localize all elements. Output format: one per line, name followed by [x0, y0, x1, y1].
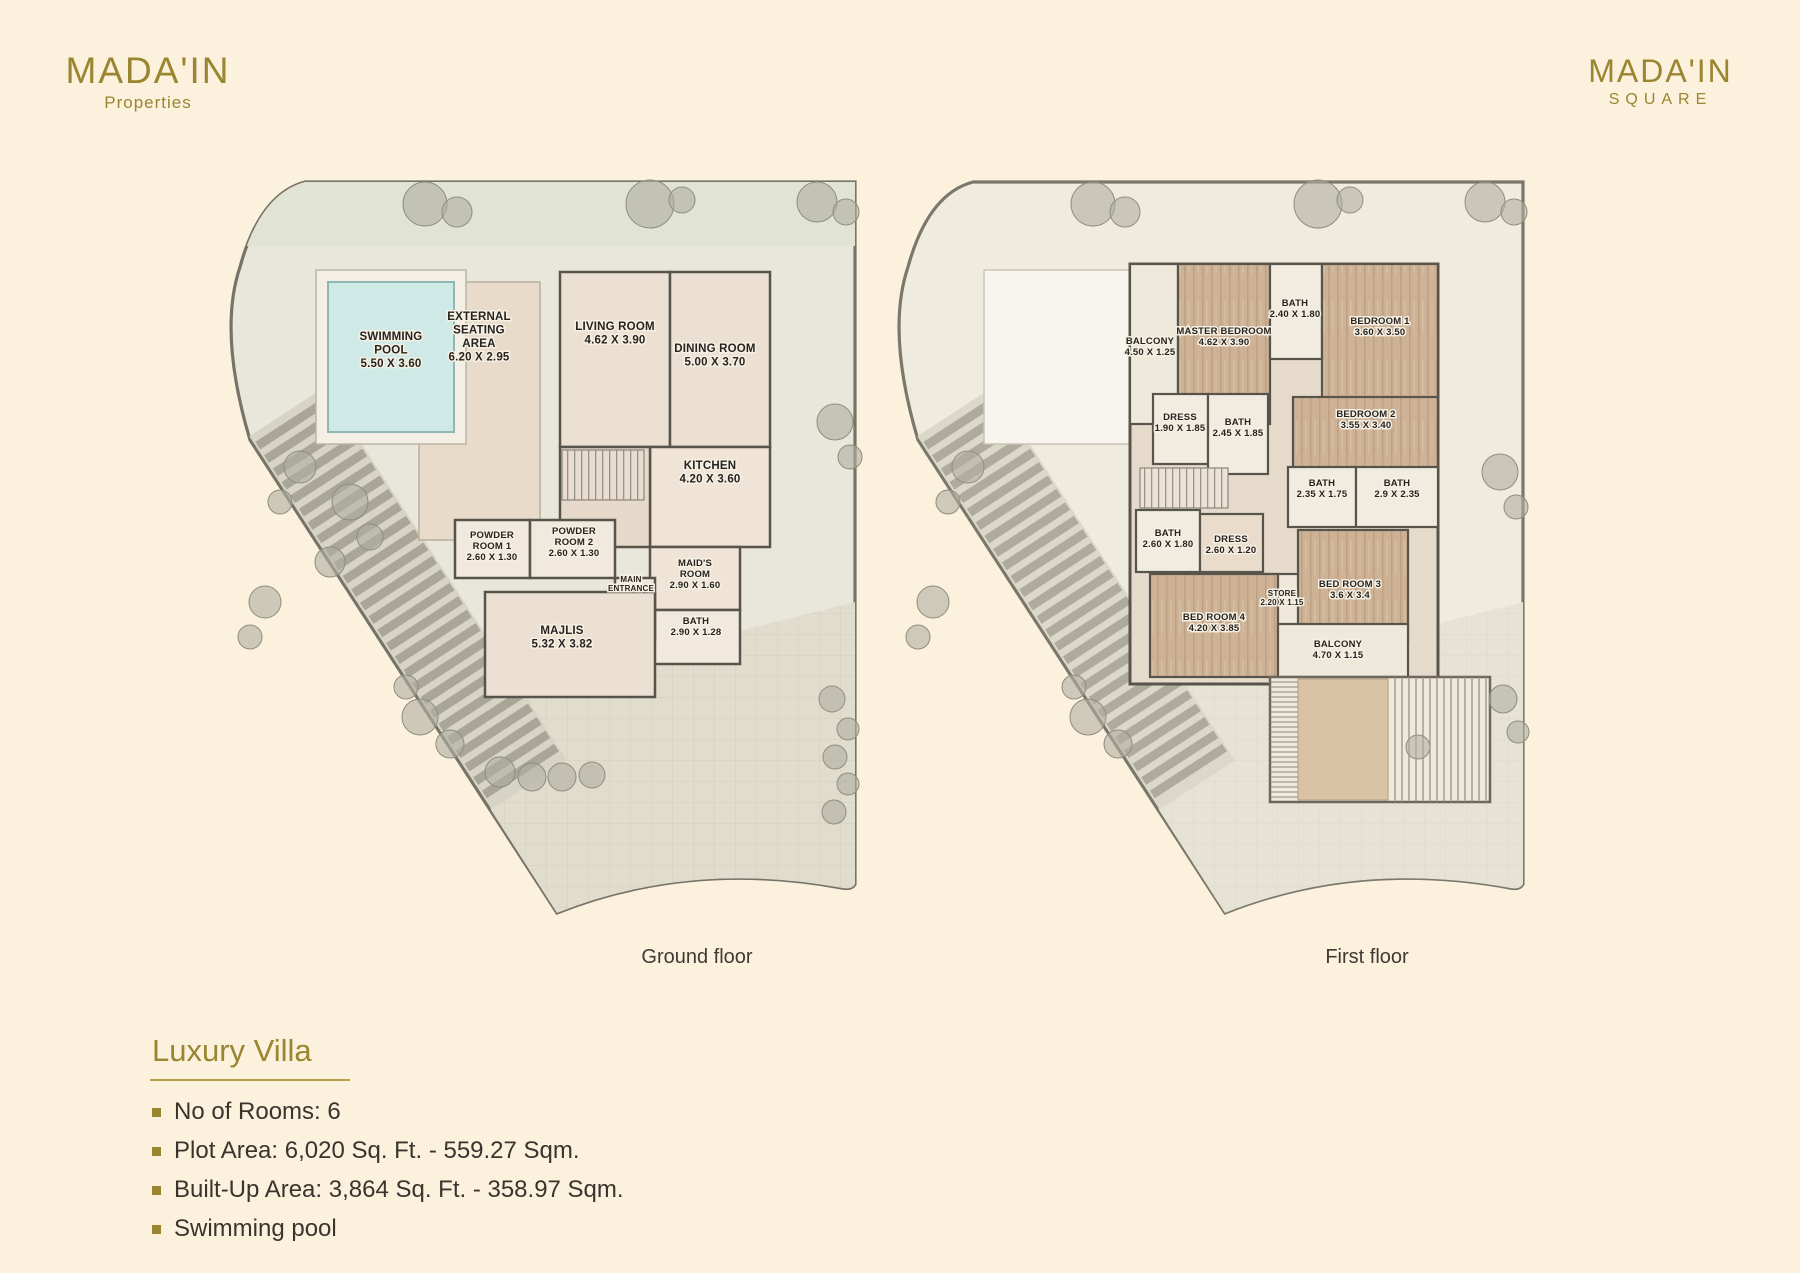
ground-floor-plan: SWIMMINGPOOL5.50 X 3.60EXTERNALSEATINGAR… [210, 172, 870, 947]
bullet-square-icon [152, 1186, 161, 1195]
room-label-powder_room_2: POWDERROOM 22.60 X 1.30 [549, 526, 600, 559]
room-label-bed_room_4: BED ROOM 44.20 X 3.85 [1183, 612, 1246, 634]
detail-bullet: Built-Up Area: 3,864 Sq. Ft. - 358.97 Sq… [150, 1175, 624, 1205]
villa-details: Luxury Villa No of Rooms: 6Plot Area: 6,… [150, 1033, 624, 1244]
room-label-dining_room: DINING ROOM5.00 X 3.70 [674, 343, 755, 369]
caption-ground-floor: Ground floor [587, 946, 807, 969]
detail-text: Swimming pool [174, 1214, 337, 1244]
first-floor-plan: BALCONY4.50 X 1.25MASTER BEDROOM4.62 X 3… [878, 172, 1538, 947]
caption-first-floor: First floor [1257, 946, 1477, 969]
room-label-bedroom_1: BEDROOM 13.60 X 3.50 [1350, 316, 1410, 338]
bullet-square-icon [152, 1147, 161, 1156]
detail-text: Built-Up Area: 3,864 Sq. Ft. - 358.97 Sq… [174, 1175, 624, 1205]
room-label-balcony_left: BALCONY4.50 X 1.25 [1125, 336, 1176, 358]
details-list: No of Rooms: 6Plot Area: 6,020 Sq. Ft. -… [150, 1097, 624, 1244]
brand-logo-square: MADA'IN SQUARE [1578, 55, 1743, 109]
detail-bullet: Swimming pool [150, 1214, 624, 1244]
brochure-page: MADA'IN Properties MADA'IN SQUARE [0, 0, 1800, 1273]
room-label-powder_room_1: POWDERROOM 12.60 X 1.30 [467, 530, 518, 563]
bullet-square-icon [152, 1225, 161, 1234]
detail-bullet: Plot Area: 6,020 Sq. Ft. - 559.27 Sqm. [150, 1136, 624, 1166]
room-label-bedroom_2: BEDROOM 23.55 X 3.40 [1336, 409, 1395, 431]
brand-tagline: Properties [58, 93, 238, 113]
stairs [1140, 468, 1228, 508]
room-label-balcony_bottom: BALCONY4.70 X 1.15 [1313, 639, 1364, 661]
bullet-square-icon [152, 1108, 161, 1117]
room-label-living_room: LIVING ROOM4.62 X 3.90 [575, 321, 655, 347]
detail-bullet: No of Rooms: 6 [150, 1097, 624, 1127]
brand-tagline: SQUARE [1578, 91, 1743, 109]
pergola-deck [1270, 677, 1490, 802]
brand-name: MADA'IN [58, 52, 238, 89]
garden-band [210, 172, 870, 246]
pool-void [984, 270, 1134, 444]
room-label-majlis: MAJLIS5.32 X 3.82 [531, 625, 592, 651]
detail-text: Plot Area: 6,020 Sq. Ft. - 559.27 Sqm. [174, 1136, 580, 1166]
room-label-kitchen: KITCHEN4.20 X 3.60 [679, 460, 740, 486]
brand-name: MADA'IN [1578, 55, 1743, 87]
swimming-pool [316, 270, 466, 444]
brand-logo-properties: MADA'IN Properties [58, 52, 238, 113]
villa-title: Luxury Villa [150, 1033, 350, 1081]
stairs [562, 450, 644, 500]
detail-text: No of Rooms: 6 [174, 1097, 341, 1127]
